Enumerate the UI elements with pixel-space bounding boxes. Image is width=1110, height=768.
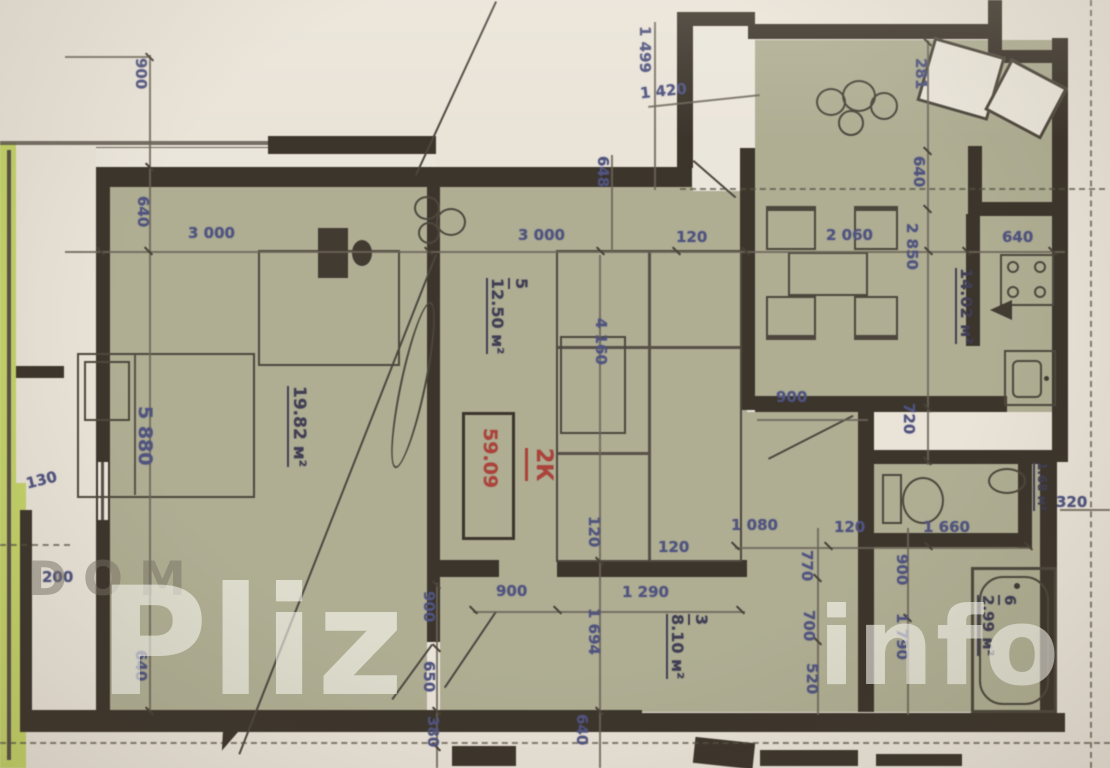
- room-label-hallway: 3 8.10 м²: [667, 614, 712, 679]
- burner-icon: [1007, 261, 1019, 273]
- dim-640-bottom: 640: [574, 714, 589, 745]
- dim-1290: 1 290: [622, 585, 669, 600]
- dim-900-bath: 900: [894, 554, 909, 585]
- wall: [557, 560, 747, 577]
- room-area: 8.10 м²: [666, 614, 687, 679]
- plant-icon: [418, 222, 440, 244]
- chair: [766, 296, 816, 340]
- dim-520: 520: [804, 663, 819, 694]
- neighbour-wall-line: [7, 150, 11, 760]
- wall: [600, 167, 692, 187]
- wall: [1018, 452, 1032, 548]
- dim-650: 650: [421, 661, 436, 692]
- dim-line: [473, 611, 745, 613]
- wall-fragment: [760, 750, 858, 766]
- dim-320-axis: 320: [1056, 495, 1087, 510]
- chair-icon: [352, 240, 372, 266]
- wall-stub: [16, 366, 64, 378]
- wall: [677, 12, 755, 26]
- dim-120-vertical: 120: [586, 516, 601, 547]
- dim-720: 720: [901, 403, 916, 434]
- total-area-value: 59.09: [476, 428, 502, 488]
- faucet-icon: [1044, 376, 1049, 381]
- toilet-bowl: [902, 477, 944, 524]
- dim-3000-bedroom: 3 000: [188, 226, 235, 241]
- dim-640-right: 640: [911, 156, 926, 187]
- plant-icon: [870, 92, 898, 120]
- dim-3000-living: 3 000: [518, 228, 565, 243]
- wall: [96, 167, 607, 187]
- dim-120-mid: 120: [834, 520, 865, 535]
- room-area: 19.82 м²: [287, 386, 309, 467]
- sofa-line: [558, 452, 650, 455]
- dim-640-kitchen-window: 640: [1002, 230, 1033, 245]
- floor-plan-photo: 3 000 3 000 120 2 060 640 900 1 080 120 …: [0, 0, 1110, 768]
- burner-icon: [1034, 286, 1046, 298]
- dim-1080: 1 080: [731, 518, 778, 533]
- room-number: 5: [508, 278, 532, 289]
- dining-table: [788, 252, 868, 296]
- axis-line: [0, 544, 70, 546]
- apartment-type-label: 2К: [525, 448, 558, 481]
- dim-4160: 4 160: [593, 318, 608, 365]
- sofa-line: [648, 252, 651, 560]
- wall-bottom: [640, 713, 1065, 732]
- dim-1694: 1 694: [586, 608, 601, 655]
- burner-icon: [1007, 286, 1019, 298]
- dim-640-left: 640: [135, 196, 150, 227]
- dim-2060-hall: 2 060: [826, 228, 873, 243]
- wall: [268, 136, 436, 154]
- kitchen-sink-basin: [1012, 360, 1042, 398]
- door-arrow-icon: [990, 300, 1012, 320]
- dim-900-top-left: 900: [133, 58, 148, 89]
- room-label-bedroom: 19.82 м²: [287, 386, 310, 467]
- room-area: 12.50 м²: [486, 278, 507, 354]
- dim-130-left: 130: [25, 469, 59, 491]
- room-label-wc: 1.68 м²: [1034, 462, 1050, 511]
- dim-line: [735, 547, 1030, 549]
- room-label-kitchen: 14.02 м²: [955, 268, 977, 344]
- leader-line: [415, 1, 497, 175]
- tv-icon: [318, 228, 348, 278]
- burner-icon: [1034, 261, 1046, 273]
- wall-fragment: [452, 746, 516, 766]
- plant-icon: [838, 110, 864, 136]
- wall-fragment: [876, 754, 962, 766]
- dim-770: 770: [799, 550, 814, 581]
- axis-line: [680, 188, 1105, 190]
- watermark-pliz: Pliz: [98, 568, 406, 718]
- watermark-info: info: [818, 594, 1061, 702]
- plant-icon: [436, 208, 466, 236]
- wall: [988, 0, 1002, 55]
- dim-900-living-door: 900: [496, 584, 527, 599]
- room-label-living: 5 12.50 м²: [487, 278, 532, 354]
- wall: [968, 146, 982, 208]
- wc-sink: [988, 468, 1026, 494]
- dim-648: 648: [595, 156, 610, 187]
- axis-line: [0, 742, 1110, 744]
- axis-line: [1090, 0, 1092, 768]
- room-area: 14.02 м²: [955, 268, 976, 344]
- chair: [766, 206, 816, 250]
- dim-1660: 1 660: [923, 520, 970, 535]
- dim-281: 281: [913, 58, 928, 89]
- wall: [20, 510, 32, 712]
- dim-120-top: 120: [676, 230, 707, 245]
- dim-120-small: 120: [658, 540, 689, 555]
- dim-line: [757, 419, 868, 421]
- dim-900-hall-door: 900: [776, 390, 807, 405]
- dim-380: 380: [425, 716, 440, 747]
- dim-700: 700: [801, 610, 816, 641]
- dim-2850: 2 850: [904, 223, 919, 270]
- wall: [748, 24, 992, 39]
- bed-pillow: [84, 361, 130, 421]
- chair: [854, 296, 898, 340]
- dim-5880-bedroom: 5 880: [135, 406, 154, 466]
- toilet-tank: [882, 474, 902, 524]
- dim-1499: 1 499: [637, 26, 652, 73]
- wall: [437, 560, 499, 577]
- wall: [968, 202, 1068, 216]
- room-number: 3: [688, 614, 712, 625]
- dim-900-bottom-left: 900: [421, 591, 436, 622]
- room-area: 1.68 м²: [1033, 462, 1049, 511]
